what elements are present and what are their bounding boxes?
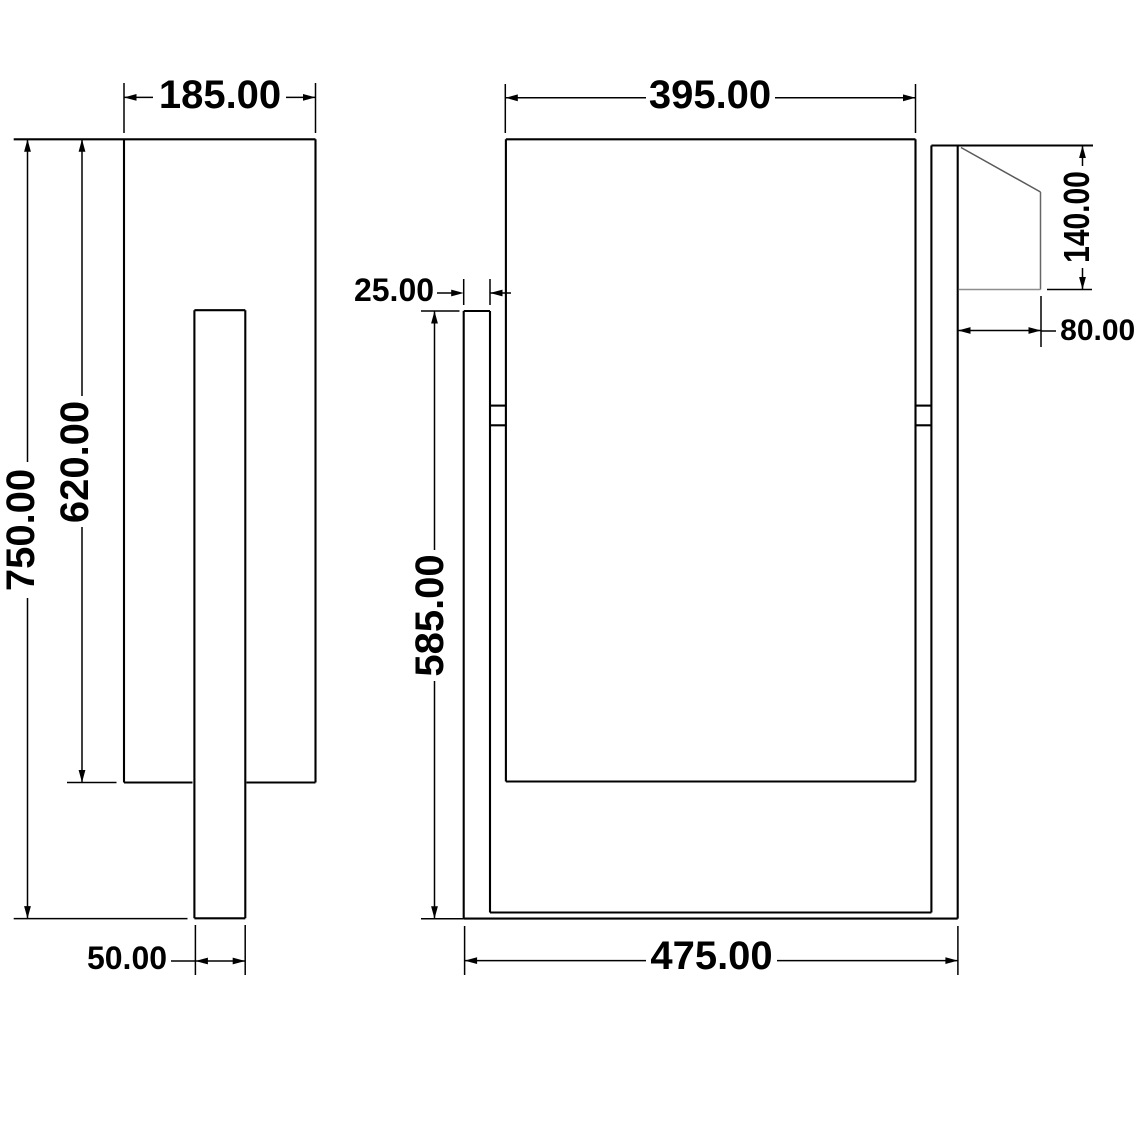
svg-text:585.00: 585.00: [408, 554, 452, 676]
svg-text:185.00: 185.00: [159, 73, 281, 117]
svg-text:25.00: 25.00: [354, 272, 434, 308]
svg-text:395.00: 395.00: [649, 73, 771, 117]
svg-text:140.00: 140.00: [1057, 171, 1097, 263]
svg-text:475.00: 475.00: [650, 934, 772, 978]
svg-text:750.00: 750.00: [0, 469, 43, 591]
svg-text:80.00: 80.00: [1060, 314, 1135, 347]
svg-text:50.00: 50.00: [87, 940, 167, 976]
svg-text:620.00: 620.00: [53, 401, 97, 523]
